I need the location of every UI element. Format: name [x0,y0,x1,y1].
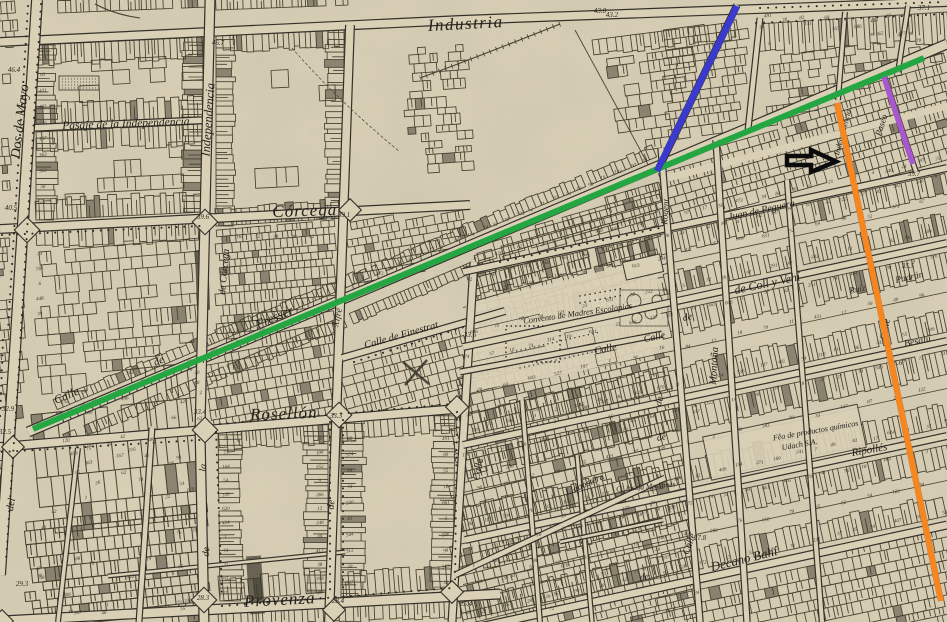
svg-text:322: 322 [606,423,614,429]
svg-text:271: 271 [756,461,764,466]
svg-text:167: 167 [236,235,244,240]
svg-text:55: 55 [178,565,184,570]
svg-text:123: 123 [892,490,900,496]
svg-text:501: 501 [36,267,44,273]
svg-text:1: 1 [85,496,88,501]
svg-text:22: 22 [223,563,229,568]
svg-text:59: 59 [867,302,873,307]
svg-text:99: 99 [574,589,580,594]
svg-text:661: 661 [442,501,450,507]
svg-text:56: 56 [581,270,587,275]
svg-text:Córcega: Córcega [272,200,338,221]
svg-text:23: 23 [615,323,621,328]
svg-text:12: 12 [711,339,717,344]
svg-text:71: 71 [634,570,640,576]
svg-text:53: 53 [942,510,947,516]
svg-text:509: 509 [875,366,883,372]
svg-text:31: 31 [790,544,796,550]
svg-text:552: 552 [316,465,324,471]
svg-text:507: 507 [74,611,83,617]
svg-text:83: 83 [876,190,882,195]
svg-text:624: 624 [716,374,724,380]
svg-text:38: 38 [443,581,449,586]
svg-text:220: 220 [346,501,355,507]
svg-text:51: 51 [416,254,422,260]
svg-text:27.8: 27.8 [694,534,707,542]
svg-text:480: 480 [147,438,155,444]
svg-text:624: 624 [887,431,895,436]
svg-text:73: 73 [223,437,229,442]
svg-text:448: 448 [870,19,878,25]
svg-text:38: 38 [273,235,279,240]
svg-text:84: 84 [685,345,691,350]
svg-text:222: 222 [645,290,653,296]
svg-text:50: 50 [602,248,608,253]
svg-text:453: 453 [70,452,78,457]
svg-text:85: 85 [737,428,743,433]
svg-text:32.9: 32.9 [1,405,15,413]
svg-text:17: 17 [841,311,847,316]
svg-text:11: 11 [641,238,646,243]
svg-text:225: 225 [839,198,848,204]
svg-text:557: 557 [832,27,840,33]
svg-text:177: 177 [898,32,906,38]
svg-text:117: 117 [484,517,492,523]
svg-text:71: 71 [177,601,183,607]
svg-text:248: 248 [885,169,893,174]
svg-text:537: 537 [692,410,700,416]
svg-text:58: 58 [564,236,570,241]
svg-text:24: 24 [901,165,907,170]
svg-text:398: 398 [316,577,324,583]
svg-text:180: 180 [658,536,666,542]
svg-text:590: 590 [710,529,718,535]
svg-text:99: 99 [755,393,761,398]
svg-text:12: 12 [576,187,582,192]
svg-text:14: 14 [708,495,714,500]
svg-text:19: 19 [566,335,572,340]
svg-text:641: 641 [589,330,597,336]
svg-text:27: 27 [820,378,826,383]
svg-text:98: 98 [291,235,297,240]
svg-text:506: 506 [506,419,514,424]
svg-text:421: 421 [814,315,822,321]
svg-text:26: 26 [467,522,473,527]
svg-text:424: 424 [222,521,230,527]
svg-text:1: 1 [472,564,475,569]
svg-text:10: 10 [509,348,515,353]
svg-text:51: 51 [566,192,571,197]
svg-text:32: 32 [561,527,567,532]
svg-text:25.4: 25.4 [460,600,473,608]
svg-text:96: 96 [844,469,850,474]
svg-text:371: 371 [892,205,900,211]
svg-text:641: 641 [594,448,602,454]
svg-text:31: 31 [80,528,86,534]
svg-text:43.8: 43.8 [594,7,607,15]
svg-text:615: 615 [634,391,642,397]
svg-text:61: 61 [638,222,644,228]
svg-text:31: 31 [453,239,458,244]
svg-text:164: 164 [222,465,230,470]
svg-text:363: 363 [39,153,47,159]
svg-text:88: 88 [492,559,498,564]
svg-text:46: 46 [616,395,622,400]
svg-text:de: de [325,499,337,510]
svg-text:13: 13 [833,348,839,353]
svg-text:la: la [198,463,210,472]
svg-text:283: 283 [811,255,819,261]
svg-text:696: 696 [629,321,637,326]
svg-text:250: 250 [506,465,514,471]
svg-text:248: 248 [316,521,324,527]
svg-text:189: 189 [773,457,781,462]
svg-text:538: 538 [606,550,614,556]
svg-text:219: 219 [634,486,642,491]
svg-text:75: 75 [89,562,95,567]
svg-text:49: 49 [830,443,836,448]
svg-text:33.3: 33.3 [329,412,343,420]
svg-text:37.1: 37.1 [917,4,930,12]
svg-text:72: 72 [487,422,493,427]
svg-text:58: 58 [40,185,46,190]
svg-text:519: 519 [472,428,480,434]
svg-text:233: 233 [184,599,192,605]
svg-text:333: 333 [876,341,884,346]
svg-text:98: 98 [478,459,484,464]
svg-text:696: 696 [470,330,478,335]
svg-text:40: 40 [194,371,200,376]
svg-text:175: 175 [523,264,531,270]
svg-text:91: 91 [789,416,795,422]
svg-text:68: 68 [194,381,200,386]
svg-text:575: 575 [685,502,694,508]
svg-text:322: 322 [39,169,47,175]
svg-text:216: 216 [128,448,136,454]
svg-text:66: 66 [171,416,177,421]
svg-text:616: 616 [736,237,745,243]
svg-text:120: 120 [62,439,70,445]
svg-text:23: 23 [679,231,685,236]
svg-text:33: 33 [492,223,498,228]
svg-text:67: 67 [919,200,925,205]
svg-text:525: 525 [517,212,525,218]
svg-text:33.4: 33.4 [193,408,207,416]
svg-text:473: 473 [735,199,743,204]
svg-text:55: 55 [608,415,614,420]
svg-text:48: 48 [820,471,826,476]
svg-text:284: 284 [658,257,666,263]
svg-text:28: 28 [664,234,670,239]
svg-text:29.3: 29.3 [16,580,29,588]
svg-text:43.2: 43.2 [606,11,619,19]
svg-text:31: 31 [650,501,655,506]
svg-text:32.5: 32.5 [0,428,12,436]
svg-text:78: 78 [581,556,587,561]
svg-text:197: 197 [580,365,588,371]
svg-text:357: 357 [504,603,512,609]
svg-text:372: 372 [376,272,384,278]
svg-text:266: 266 [316,493,324,498]
svg-text:137: 137 [840,405,848,411]
svg-text:241: 241 [796,450,804,456]
svg-text:12: 12 [847,247,853,252]
svg-text:de: de [201,546,213,557]
svg-text:53: 53 [748,551,754,556]
svg-text:11: 11 [685,248,690,253]
svg-text:448: 448 [36,297,44,303]
svg-text:414: 414 [467,233,476,239]
svg-text:46.4: 46.4 [8,66,21,74]
svg-text:39.7: 39.7 [907,170,921,178]
svg-text:329: 329 [575,525,583,531]
svg-text:222: 222 [127,575,135,581]
svg-text:20: 20 [599,584,605,589]
svg-text:51: 51 [640,576,646,582]
svg-text:357: 357 [116,454,124,460]
svg-text:28.3: 28.3 [197,594,210,602]
svg-text:Industria: Industria [426,12,504,35]
svg-text:71: 71 [223,451,229,457]
svg-text:665: 665 [560,256,568,262]
svg-text:84: 84 [745,488,751,493]
svg-text:650: 650 [762,518,771,524]
svg-text:583: 583 [762,424,771,430]
svg-text:11: 11 [675,383,681,389]
svg-text:40.5: 40.5 [5,204,18,212]
svg-text:11: 11 [789,320,795,326]
svg-text:del: del [5,497,18,512]
svg-text:527: 527 [554,372,563,378]
svg-text:251: 251 [808,283,816,289]
svg-text:528: 528 [595,229,603,234]
svg-text:28.4: 28.4 [332,597,345,605]
svg-text:129: 129 [563,500,571,506]
svg-text:75: 75 [641,567,647,572]
svg-text:54: 54 [347,485,353,490]
svg-text:39.6: 39.6 [196,213,210,221]
svg-text:75: 75 [192,529,198,534]
svg-text:491: 491 [442,437,450,443]
svg-text:91: 91 [807,185,813,191]
svg-text:613: 613 [632,264,640,270]
svg-text:46.7: 46.7 [212,39,225,47]
svg-text:1: 1 [608,359,611,364]
svg-text:76: 76 [176,531,182,536]
svg-text:308: 308 [63,593,71,598]
svg-text:96: 96 [854,346,860,351]
svg-text:81: 81 [623,428,629,434]
svg-text:587: 587 [637,513,646,519]
svg-text:431: 431 [39,89,47,95]
svg-text:136: 136 [554,274,562,279]
svg-text:180: 180 [883,458,892,464]
svg-text:18: 18 [861,465,867,470]
svg-text:Rosellón: Rosellón [249,403,318,424]
svg-text:416: 416 [783,479,791,484]
svg-text:141: 141 [804,22,812,27]
svg-text:74: 74 [138,478,144,483]
svg-text:79: 79 [503,482,509,487]
svg-text:42: 42 [51,510,57,515]
svg-text:Montaña: Montaña [708,347,721,386]
svg-text:81: 81 [347,517,352,522]
svg-text:104: 104 [924,230,932,236]
svg-text:21: 21 [668,313,674,319]
svg-text:350: 350 [904,236,912,241]
svg-text:39.1: 39.1 [337,211,350,219]
svg-text:48: 48 [101,611,107,616]
svg-text:50: 50 [490,273,496,278]
svg-text:620: 620 [222,507,230,513]
svg-text:31: 31 [723,493,729,499]
svg-text:137: 137 [39,137,48,143]
svg-text:264: 264 [647,415,655,421]
svg-text:491: 491 [764,14,772,20]
svg-text:Provenza: Provenza [242,588,315,611]
svg-text:58: 58 [347,565,353,570]
svg-text:226: 226 [39,121,47,126]
svg-text:29: 29 [317,591,323,596]
svg-text:178: 178 [805,475,813,480]
svg-text:21: 21 [828,180,834,186]
svg-text:74: 74 [464,355,470,360]
svg-text:686: 686 [854,25,862,31]
svg-text:34: 34 [407,259,413,264]
svg-text:445: 445 [771,547,780,553]
svg-text:11: 11 [540,202,545,208]
svg-text:60: 60 [317,437,323,442]
svg-text:73: 73 [918,357,924,362]
svg-text:142: 142 [614,170,622,176]
svg-text:565: 565 [442,565,450,571]
svg-text:11: 11 [223,591,228,597]
svg-text:29: 29 [545,595,551,600]
